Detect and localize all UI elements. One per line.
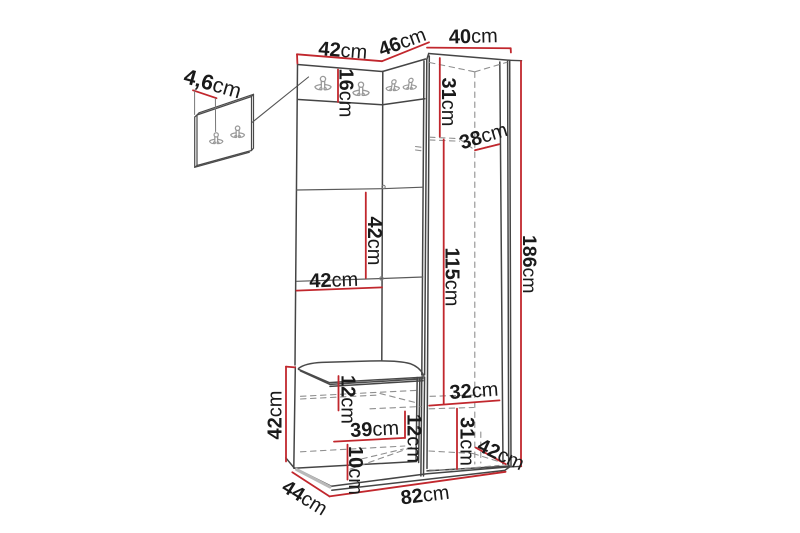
svg-text:31cm: 31cm [437, 78, 459, 127]
svg-text:42cm: 42cm [309, 269, 359, 293]
svg-text:39cm: 39cm [350, 417, 400, 442]
svg-text:16cm: 16cm [335, 69, 357, 118]
svg-text:32cm: 32cm [449, 379, 499, 404]
svg-text:42cm: 42cm [318, 38, 368, 64]
svg-text:12cm: 12cm [337, 375, 359, 424]
svg-text:115cm: 115cm [441, 248, 463, 307]
svg-text:40cm: 40cm [449, 25, 498, 48]
svg-text:42cm: 42cm [363, 217, 385, 266]
svg-text:12cm: 12cm [403, 414, 425, 463]
svg-text:42cm: 42cm [265, 391, 287, 440]
svg-text:31cm: 31cm [456, 417, 478, 466]
svg-text:10cm: 10cm [344, 446, 366, 495]
svg-text:186cm: 186cm [518, 235, 540, 294]
